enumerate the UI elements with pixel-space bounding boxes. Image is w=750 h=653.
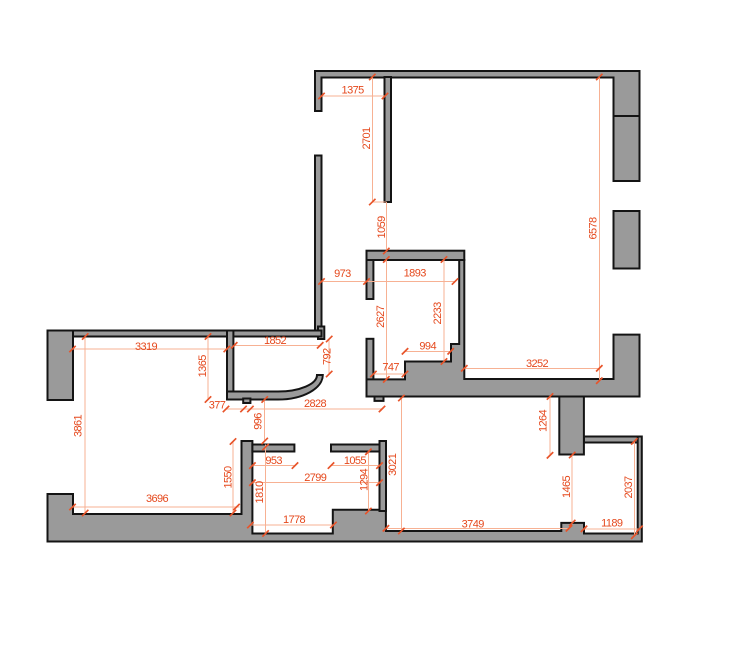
svg-text:2701: 2701 xyxy=(361,127,373,150)
svg-text:2627: 2627 xyxy=(375,305,387,328)
svg-text:1550: 1550 xyxy=(222,466,234,489)
svg-text:953: 953 xyxy=(265,455,282,467)
svg-text:2037: 2037 xyxy=(623,476,635,499)
svg-text:1893: 1893 xyxy=(404,267,427,279)
svg-text:2799: 2799 xyxy=(304,472,327,484)
svg-text:2828: 2828 xyxy=(304,398,327,410)
svg-text:1810: 1810 xyxy=(254,481,266,504)
svg-text:1365: 1365 xyxy=(197,355,209,378)
svg-text:1055: 1055 xyxy=(344,455,367,467)
svg-text:377: 377 xyxy=(209,399,226,411)
svg-text:1264: 1264 xyxy=(538,409,550,432)
svg-text:3319: 3319 xyxy=(135,341,158,353)
svg-text:1375: 1375 xyxy=(342,85,365,97)
svg-text:3021: 3021 xyxy=(387,453,399,476)
svg-text:994: 994 xyxy=(419,341,436,353)
svg-text:792: 792 xyxy=(321,348,333,365)
svg-text:6578: 6578 xyxy=(588,217,600,240)
svg-text:1189: 1189 xyxy=(601,518,623,530)
svg-text:1778: 1778 xyxy=(283,514,306,526)
svg-text:3696: 3696 xyxy=(146,493,169,505)
svg-text:1852: 1852 xyxy=(264,335,287,347)
svg-text:2233: 2233 xyxy=(432,302,444,325)
svg-text:3861: 3861 xyxy=(73,414,85,437)
svg-text:1059: 1059 xyxy=(376,216,388,239)
svg-text:1294: 1294 xyxy=(359,468,371,491)
svg-text:973: 973 xyxy=(334,268,351,280)
svg-text:747: 747 xyxy=(382,362,399,374)
svg-text:3252: 3252 xyxy=(526,358,549,370)
svg-text:1465: 1465 xyxy=(561,475,573,498)
svg-text:996: 996 xyxy=(253,413,265,430)
svg-text:3749: 3749 xyxy=(462,519,485,531)
